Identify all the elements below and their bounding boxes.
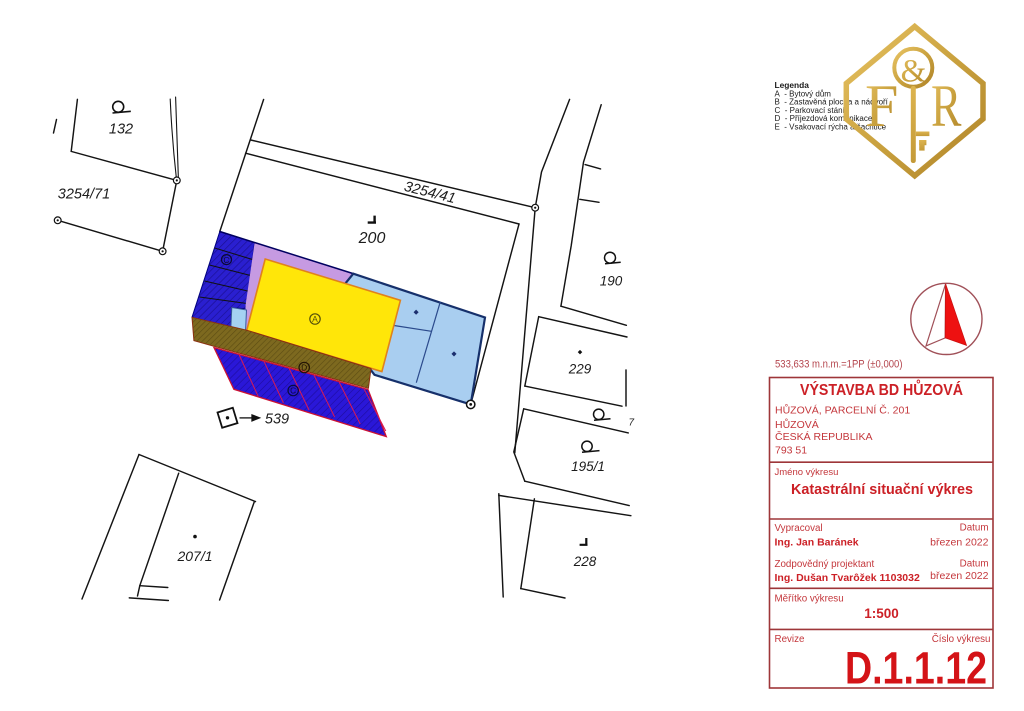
svg-text:539: 539 <box>265 412 289 428</box>
svg-text:VÝSTAVBA BD HŮZOVÁ: VÝSTAVBA BD HŮZOVÁ <box>800 380 963 399</box>
svg-text:Jméno výkresu: Jméno výkresu <box>775 467 839 478</box>
svg-text:D: D <box>301 363 307 373</box>
svg-text:A: A <box>312 314 318 324</box>
svg-text:200: 200 <box>358 230 386 247</box>
svg-text:Datum: Datum <box>960 559 989 570</box>
svg-text:1:500: 1:500 <box>864 606 899 621</box>
svg-text:229: 229 <box>568 362 592 377</box>
svg-text:Zodpovědný projektant: Zodpovědný projektant <box>775 559 875 570</box>
svg-text:C: C <box>223 255 229 265</box>
svg-text:R: R <box>931 73 962 139</box>
svg-text:HŮZOVÁ, PARCELNÍ Č. 201: HŮZOVÁ, PARCELNÍ Č. 201 <box>775 404 910 417</box>
svg-text:březen 2022: březen 2022 <box>930 537 989 549</box>
svg-text:Katastrální situační výkres: Katastrální situační výkres <box>791 481 973 498</box>
svg-text:C: C <box>290 386 296 396</box>
svg-text:7: 7 <box>629 418 635 429</box>
svg-text:ČESKÁ REPUBLIKA: ČESKÁ REPUBLIKA <box>775 430 872 443</box>
svg-text:D.1.1.12: D.1.1.12 <box>845 643 987 694</box>
svg-text:190: 190 <box>600 274 623 289</box>
svg-text:&: & <box>901 54 927 90</box>
svg-text:březen 2022: březen 2022 <box>930 570 989 582</box>
svg-text:Revize: Revize <box>775 634 805 645</box>
svg-text:Datum: Datum <box>960 523 989 534</box>
svg-text:793 51: 793 51 <box>775 444 807 456</box>
svg-text:Ing. Dušan Tvarôžek 1103032: Ing. Dušan Tvarôžek 1103032 <box>775 572 920 584</box>
svg-text:195/1: 195/1 <box>571 459 605 474</box>
svg-text:207/1: 207/1 <box>176 548 212 564</box>
svg-text:132: 132 <box>109 122 133 138</box>
svg-text:Vypracoval: Vypracoval <box>775 523 823 534</box>
svg-text:HŮZOVÁ: HŮZOVÁ <box>775 418 819 431</box>
svg-text:Měřítko výkresu: Měřítko výkresu <box>775 593 844 604</box>
svg-text:533,633 m.n.m.=1PP (±0,000): 533,633 m.n.m.=1PP (±0,000) <box>775 359 903 371</box>
svg-text:228: 228 <box>573 554 597 569</box>
svg-text:F: F <box>865 73 898 139</box>
svg-text:Ing. Jan Baránek: Ing. Jan Baránek <box>775 537 859 549</box>
svg-text:3254/71: 3254/71 <box>58 187 110 203</box>
